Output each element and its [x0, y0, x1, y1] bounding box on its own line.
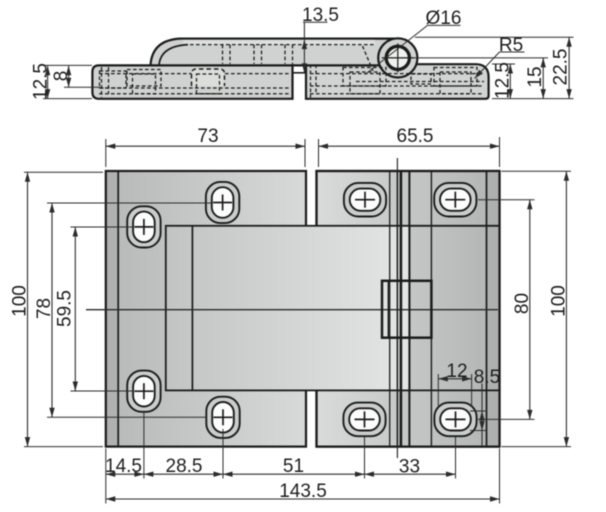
svg-text:143.5: 143.5	[279, 481, 327, 502]
svg-text:13.5: 13.5	[302, 5, 339, 26]
svg-text:80: 80	[512, 293, 533, 314]
svg-text:R5: R5	[499, 35, 523, 56]
svg-text:33: 33	[399, 457, 420, 478]
svg-text:8: 8	[51, 71, 72, 82]
svg-text:100: 100	[549, 285, 570, 317]
svg-text:15: 15	[525, 66, 546, 87]
svg-text:59.5: 59.5	[55, 290, 76, 327]
svg-text:65.5: 65.5	[397, 126, 434, 147]
svg-text:73: 73	[197, 126, 218, 147]
svg-text:28.5: 28.5	[166, 456, 203, 477]
svg-text:22.5: 22.5	[551, 49, 572, 86]
svg-text:12.5: 12.5	[493, 62, 514, 99]
svg-text:14.5: 14.5	[105, 456, 142, 477]
svg-text:51: 51	[283, 456, 304, 477]
svg-text:78: 78	[34, 298, 55, 319]
svg-text:Ø16: Ø16	[426, 8, 462, 29]
svg-text:8.5: 8.5	[474, 367, 500, 388]
svg-text:100: 100	[10, 285, 31, 317]
svg-text:12.5: 12.5	[31, 63, 52, 100]
svg-text:12: 12	[446, 361, 467, 382]
